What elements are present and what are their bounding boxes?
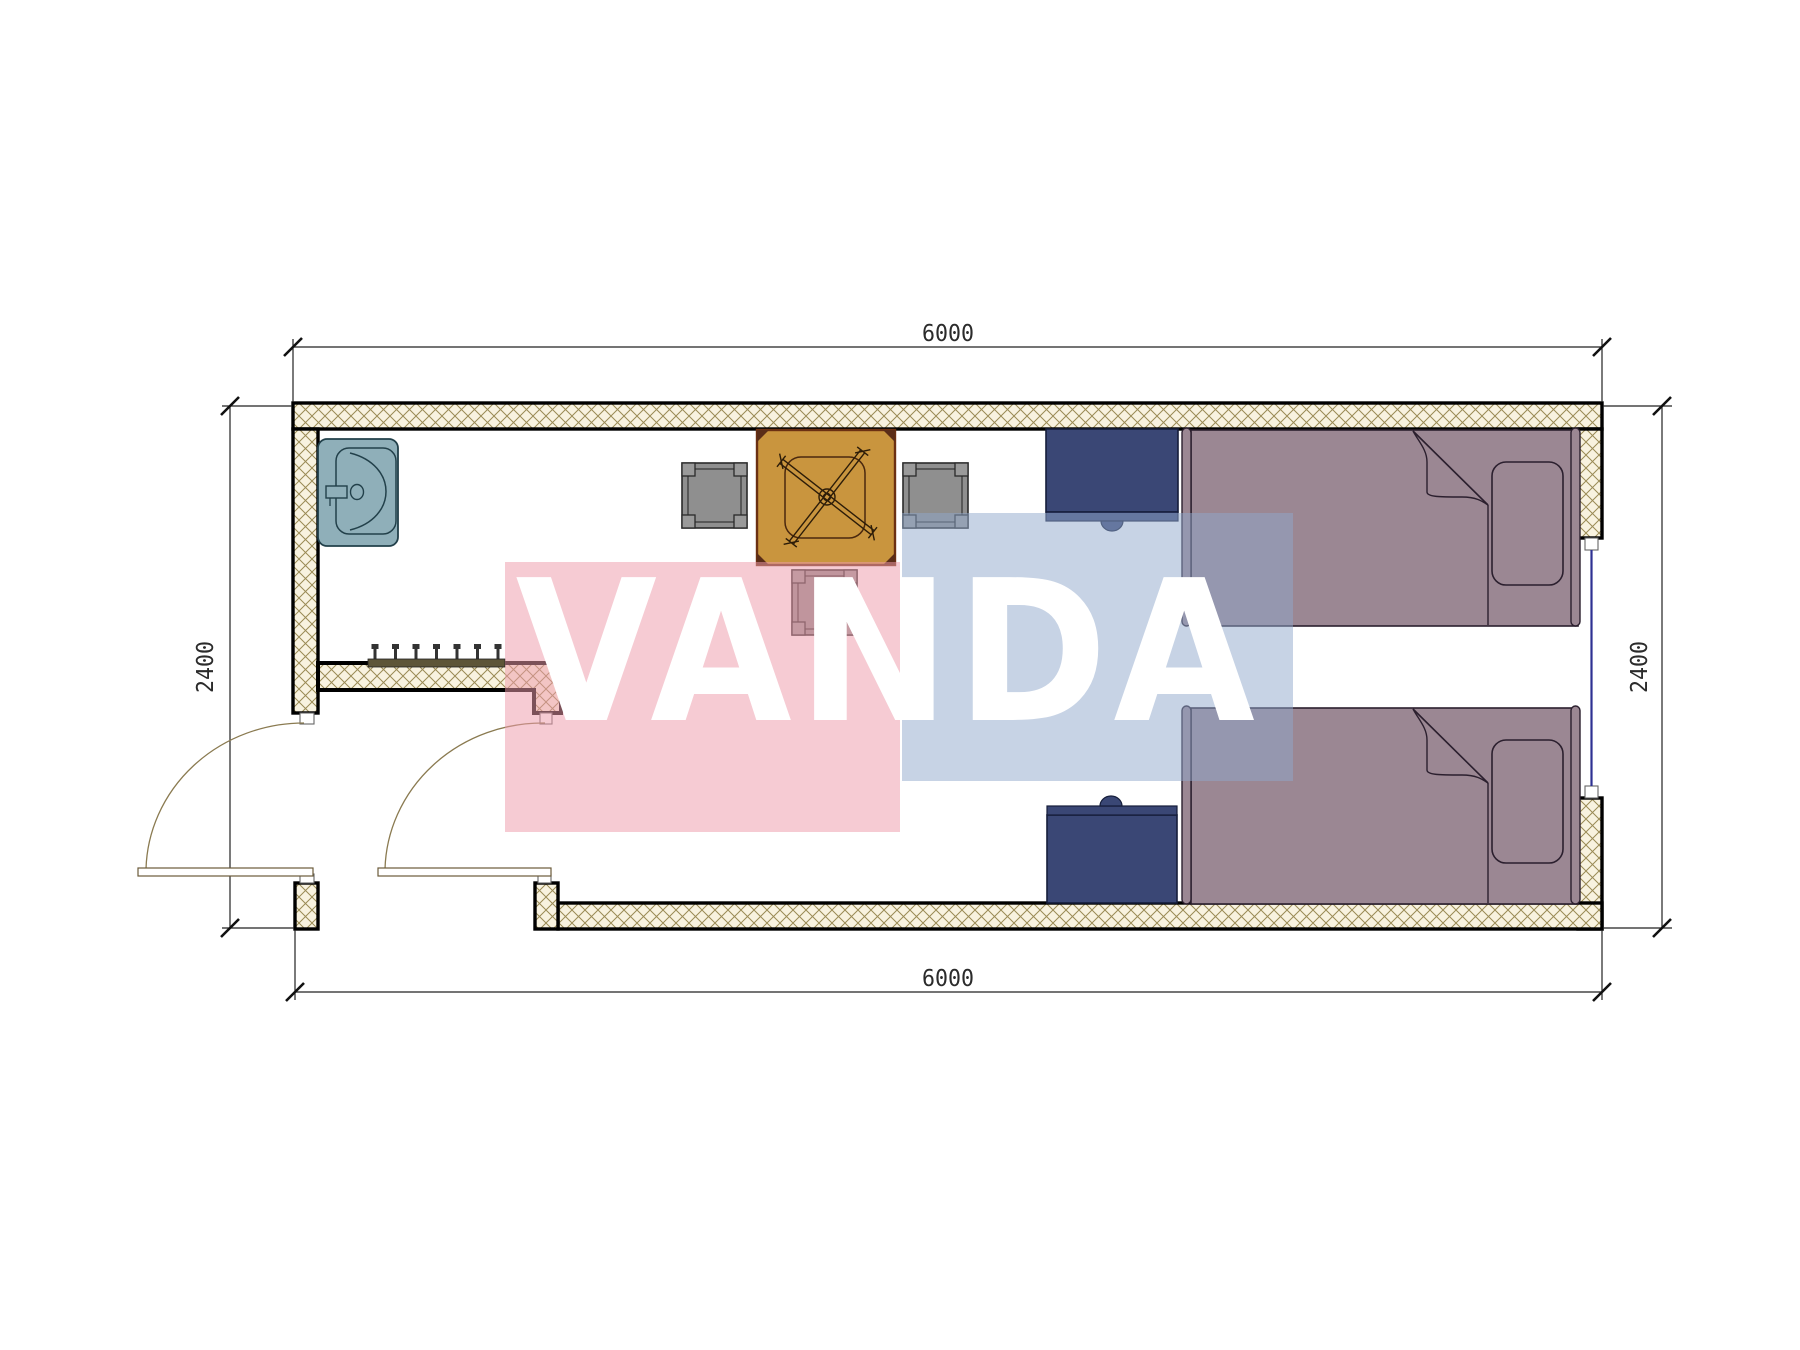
nightstand-bottom-knob [1100,796,1122,806]
wall-stub-right [535,883,558,929]
watermark-text: VANDA [516,539,1261,767]
coat-rack [368,644,505,667]
jamb-window-bottom [1585,786,1598,798]
floor-plan-canvas: 6000 6000 2400 2400 [0,0,1800,1350]
wall-right-upper [1578,429,1602,538]
dim-label-top: 6000 [922,321,974,347]
wall-top [293,403,1602,429]
jamb-left-wall [300,713,314,724]
sink [318,439,398,546]
wall-bottom [558,903,1602,929]
dim-label-bottom: 6000 [922,966,974,992]
coat-rack-bar [368,659,505,667]
door-leaf-right [378,868,551,876]
entry-doors [138,723,551,876]
door-swing-arc-left [146,723,304,869]
nightstand-bottom [1047,796,1177,903]
door-leaf-left [138,868,313,876]
floor-plan-drawing: 6000 6000 2400 2400 [0,0,1800,1350]
chair-left [682,463,747,528]
wall-stub-left [295,883,318,929]
jamb-window-top [1585,538,1598,550]
dim-label-left: 2400 [193,641,219,693]
sink-faucet [326,486,347,498]
wall-left [293,429,318,713]
dim-label-right: 2400 [1627,641,1653,693]
watermark: VANDA [505,513,1293,832]
